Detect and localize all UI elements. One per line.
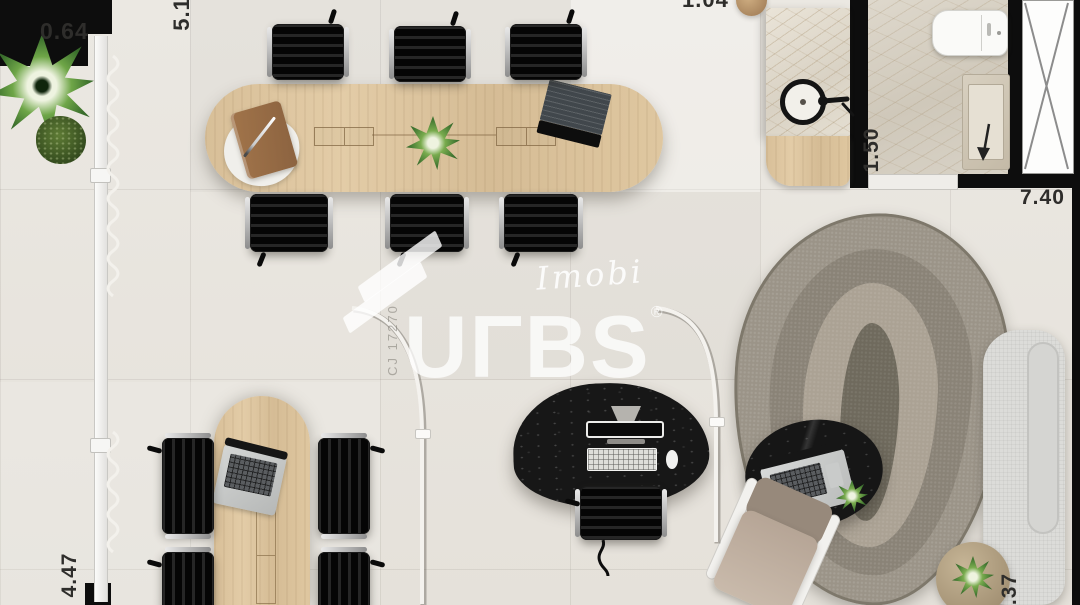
shower-basin-inner — [968, 84, 1004, 160]
window-mullion — [90, 438, 111, 453]
chair-lever — [256, 252, 266, 268]
window-wall — [94, 36, 108, 602]
chair-lever — [450, 11, 459, 27]
dimension-label-top-left: 0.64 — [40, 18, 89, 45]
office-chair — [580, 486, 662, 540]
lamp-joint — [415, 429, 431, 439]
registered-mark: ® — [651, 304, 663, 321]
lamp-joint — [709, 417, 725, 427]
watermark-brand-text: UΓBS — [404, 297, 651, 396]
office-chair — [162, 552, 214, 605]
chair-lever — [565, 498, 581, 507]
chair-lever — [510, 252, 520, 268]
chair-lever — [396, 252, 406, 268]
dimension-label-top-center: 1.04 — [682, 0, 729, 13]
shower-basin — [962, 74, 1010, 170]
office-chair — [510, 24, 582, 80]
watermark-script: Imobi — [535, 252, 645, 297]
office-chair — [162, 438, 214, 534]
toilet-button — [987, 23, 991, 36]
dimension-label-right-wall: 7.40 — [1020, 186, 1065, 210]
window-mullion — [90, 168, 111, 183]
chair-lever — [147, 445, 163, 454]
mouse — [666, 450, 678, 469]
toilet — [932, 10, 1008, 56]
sink-drain — [800, 99, 806, 105]
office-chair — [394, 26, 466, 82]
chair-lever — [370, 445, 386, 454]
monitor-foot — [607, 439, 645, 444]
elevator-shaft — [1022, 0, 1074, 174]
office-chair — [250, 194, 328, 252]
bush-plant — [36, 116, 86, 164]
chair-lever — [370, 559, 386, 568]
watermark-logo-chevron — [343, 261, 428, 333]
toilet-tank-line — [981, 15, 982, 51]
watermark-brand: UΓBS® — [404, 296, 663, 398]
desk-groove — [256, 506, 276, 604]
dimension-label-left-side: 5.1 — [172, 0, 192, 44]
chair-cable — [599, 540, 608, 576]
cable-tray — [314, 127, 374, 146]
dimension-label-bottom-left: 4.47 — [60, 545, 80, 605]
dimension-label-bath-partition: 1.50 — [862, 120, 882, 180]
office-chair — [272, 24, 344, 80]
keyboard — [587, 448, 657, 471]
chair-lever — [147, 559, 163, 568]
chair-lever — [566, 9, 575, 25]
sink-basin — [780, 79, 826, 125]
floorplan-canvas: Imobi UΓBS® CJ 17270 0.64 5.1 1.04 1.50 … — [0, 0, 1080, 605]
office-chair — [318, 438, 370, 534]
watermark-license: CJ 17270 — [383, 295, 403, 385]
toilet-dot — [997, 31, 1001, 35]
office-chair — [318, 552, 370, 605]
sofa-armrest — [1027, 342, 1059, 534]
office-chair — [504, 194, 578, 252]
chair-lever — [328, 9, 337, 25]
monitor — [586, 421, 664, 438]
plant-pot-top — [736, 0, 767, 16]
vanity-wood-counter — [766, 136, 850, 186]
dimension-label-bottom-right: .37 — [1000, 559, 1020, 605]
office-chair — [390, 194, 464, 252]
